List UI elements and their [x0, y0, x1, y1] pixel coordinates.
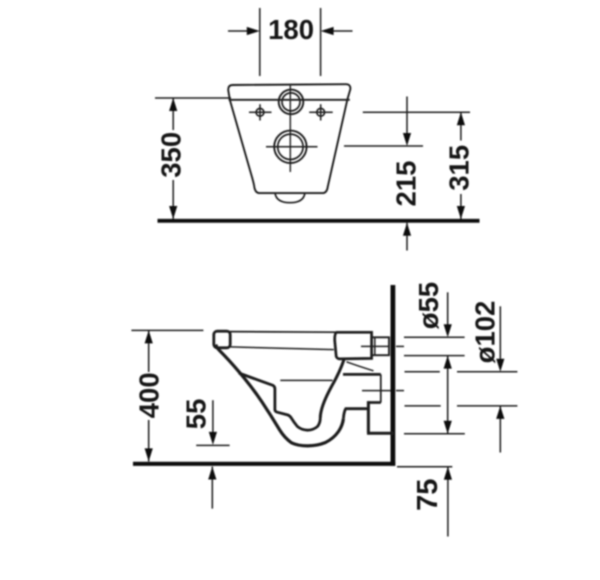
svg-text:ø55: ø55	[413, 282, 444, 329]
svg-text:ø102: ø102	[469, 301, 500, 364]
svg-text:350: 350	[155, 132, 186, 178]
svg-text:215: 215	[390, 161, 421, 207]
svg-text:75: 75	[412, 479, 444, 511]
svg-text:400: 400	[134, 372, 165, 418]
svg-text:55: 55	[181, 399, 212, 430]
svg-text:315: 315	[444, 145, 475, 191]
svg-text:180: 180	[268, 14, 314, 45]
